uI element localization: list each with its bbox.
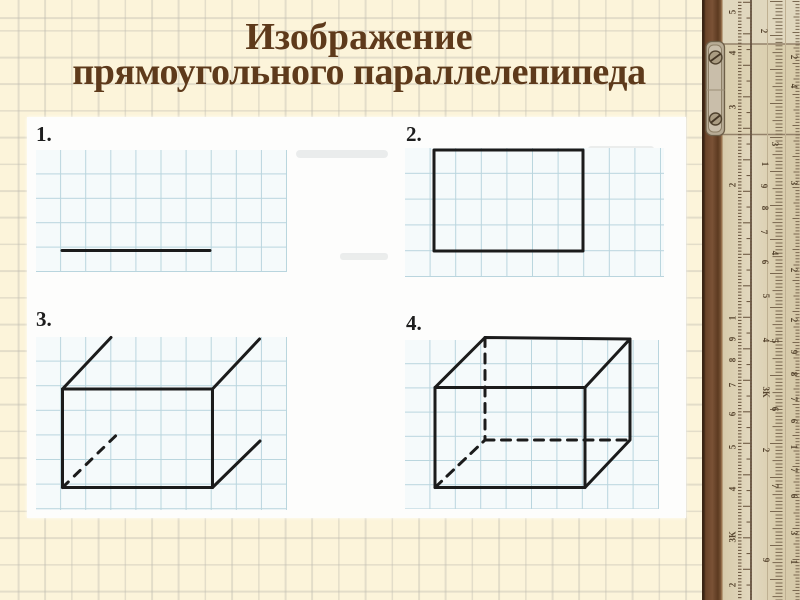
- svg-text:3К: 3К: [761, 386, 771, 398]
- svg-text:4: 4: [728, 50, 738, 55]
- svg-text:7: 7: [728, 382, 738, 387]
- svg-text:9: 9: [761, 558, 771, 563]
- svg-text:9: 9: [789, 350, 799, 355]
- svg-text:8: 8: [789, 372, 799, 377]
- svg-text:9: 9: [728, 336, 738, 341]
- svg-text:6: 6: [728, 411, 738, 416]
- svg-text:3: 3: [789, 181, 799, 186]
- svg-text:4: 4: [770, 251, 780, 256]
- svg-text:2: 2: [728, 182, 738, 187]
- svg-text:2: 2: [789, 318, 799, 323]
- svg-text:7: 7: [770, 484, 780, 489]
- svg-text:3.: 3.: [36, 307, 52, 331]
- svg-text:3: 3: [728, 104, 738, 109]
- svg-text:5: 5: [728, 444, 738, 449]
- svg-text:2: 2: [728, 582, 738, 587]
- svg-text:6: 6: [789, 494, 799, 499]
- svg-text:2: 2: [759, 29, 769, 34]
- svg-text:5: 5: [728, 9, 738, 14]
- svg-text:8: 8: [728, 357, 738, 362]
- svg-text:9: 9: [759, 184, 769, 189]
- svg-text:1: 1: [789, 560, 799, 565]
- svg-text:7: 7: [789, 397, 799, 402]
- svg-text:2: 2: [789, 268, 799, 273]
- svg-text:6: 6: [760, 260, 770, 265]
- svg-text:7: 7: [759, 230, 769, 235]
- svg-text:2: 2: [789, 55, 799, 60]
- svg-text:5: 5: [770, 339, 780, 344]
- svg-text:7: 7: [789, 468, 799, 473]
- svg-text:3К: 3К: [728, 531, 738, 543]
- svg-text:6: 6: [770, 407, 780, 412]
- svg-text:4: 4: [761, 338, 771, 343]
- svg-text:1.: 1.: [36, 122, 52, 146]
- svg-text:1: 1: [728, 315, 738, 320]
- svg-text:5: 5: [761, 294, 771, 299]
- svg-text:6: 6: [789, 419, 799, 424]
- svg-text:8: 8: [760, 206, 770, 211]
- svg-text:1: 1: [789, 445, 799, 450]
- svg-text:1: 1: [760, 162, 770, 167]
- svg-text:4: 4: [728, 486, 738, 491]
- svg-text:4.: 4.: [406, 311, 422, 335]
- svg-text:3: 3: [789, 531, 799, 536]
- svg-text:3: 3: [770, 142, 780, 147]
- svg-text:2: 2: [761, 448, 771, 453]
- svg-text:4: 4: [789, 84, 799, 89]
- svg-text:2.: 2.: [406, 122, 422, 146]
